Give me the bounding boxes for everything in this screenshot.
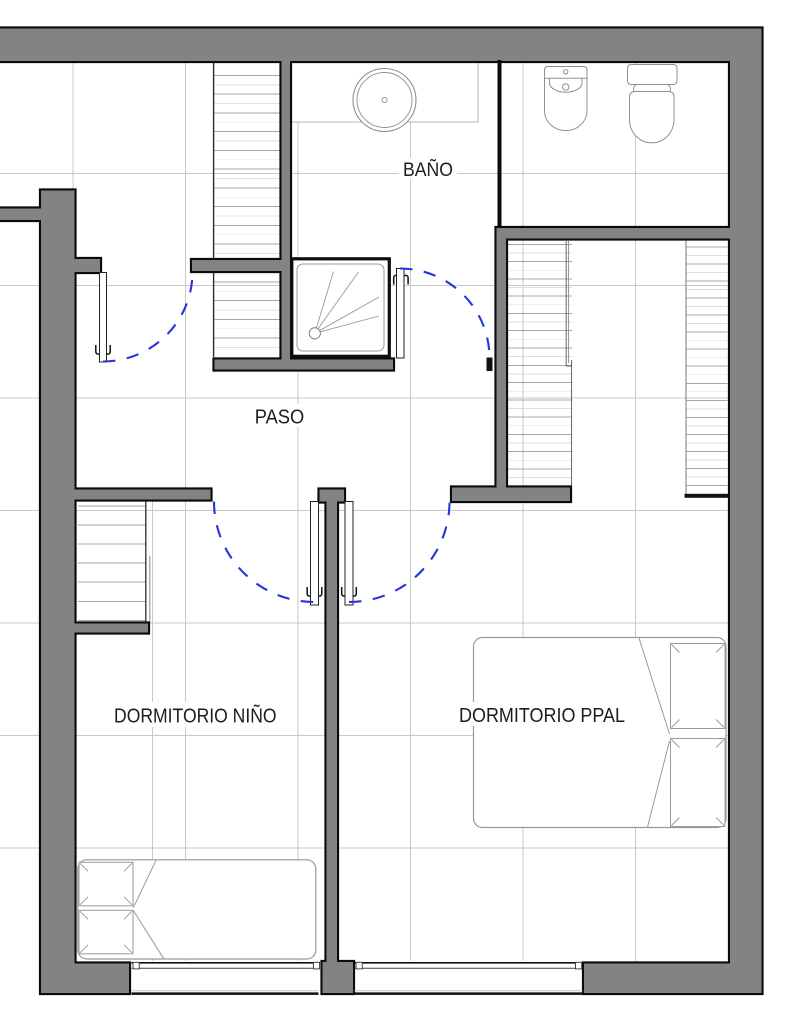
svg-text:PASO: PASO (255, 405, 305, 428)
svg-text:DORMITORIO NIÑO: DORMITORIO NIÑO (114, 703, 277, 727)
svg-text:BAÑO: BAÑO (403, 157, 453, 181)
svg-text:DORMITORIO PPAL: DORMITORIO PPAL (459, 705, 625, 727)
